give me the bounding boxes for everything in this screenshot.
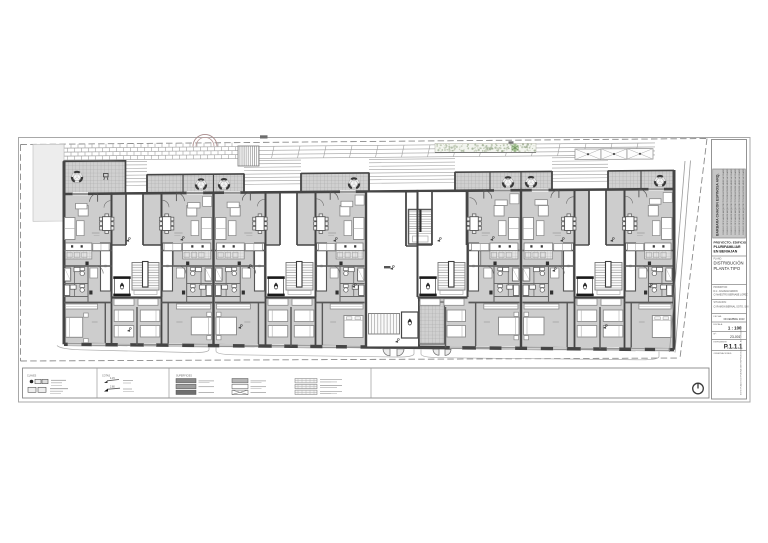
svg-text:PLANTA TIPO: PLANTA TIPO [714,266,741,271]
svg-text:COLEGIO OFICIAL DE ARQUITECTOS: COLEGIO OFICIAL DE ARQUITECTOS REGION DE… [738,168,741,235]
svg-text:D.J. JULIANA MARIN: D.J. JULIANA MARIN [714,290,738,293]
svg-text:4.15: 4.15 [110,377,115,380]
svg-text:COLEGIO OFICIAL DE ARQUITECTOS: COLEGIO OFICIAL DE ARQUITECTOS REGION DE… [730,168,733,235]
svg-text:ESCALA:: ESCALA: [714,323,724,326]
svg-text:Nº:: Nº: [714,333,717,336]
svg-text:FECHA:: FECHA: [714,315,722,318]
svg-text:23-001: 23-001 [730,335,741,339]
svg-text:SITUACION:: SITUACION: [714,301,728,304]
svg-text:DICIEMBRE 2023: DICIEMBRE 2023 [724,317,745,321]
svg-text:C/ MAESTRO BERNABE LOPEZ: C/ MAESTRO BERNABE LOPEZ [714,294,749,297]
svg-text:OBSERVACIONES:: OBSERVACIONES: [714,352,733,355]
svg-text:COLEGIO OFICIAL DE ARQUITECTOS: COLEGIO OFICIAL DE ARQUITECTOS REGION DE… [722,168,725,235]
svg-text:PROYECTO: EDIFICIO: PROYECTO: EDIFICIO [714,241,747,245]
svg-text:SUPERFICIES: SUPERFICIES [176,375,192,378]
svg-text:2.80: 2.80 [110,386,115,389]
svg-text:DISTRIBUCIÓN: DISTRIBUCIÓN [714,261,744,266]
svg-text:COLEGIO OFICIAL DE ARQUITECTOS: COLEGIO OFICIAL DE ARQUITECTOS REGION DE… [734,168,737,235]
svg-text:ESTE PLANO NO PODRA SER REPROD: ESTE PLANO NO PODRA SER REPRODUCIDO SIN … [740,325,743,395]
svg-text:PLURIFAMILIAR: PLURIFAMILIAR [714,245,741,249]
svg-text:CLAVES: CLAVES [27,375,37,378]
svg-text:PROMOTOR:: PROMOTOR: [714,287,728,289]
svg-text:COLEGIO OFICIAL DE ARQUITECTOS: COLEGIO OFICIAL DE ARQUITECTOS REGION DE… [726,168,729,235]
svg-text:BARBARA CHACON ESPINOSA ARQ.: BARBARA CHACON ESPINOSA ARQ. [716,174,720,236]
svg-text:COLEGIO OFICIAL DE ARQUITECTOS: COLEGIO OFICIAL DE ARQUITECTOS REGION DE… [742,168,745,235]
svg-text:C/ RAMON BERNAL SOTO, S/N: C/ RAMON BERNAL SOTO, S/N [714,306,749,309]
svg-text:EN BENIAJAN: EN BENIAJAN [714,250,738,254]
